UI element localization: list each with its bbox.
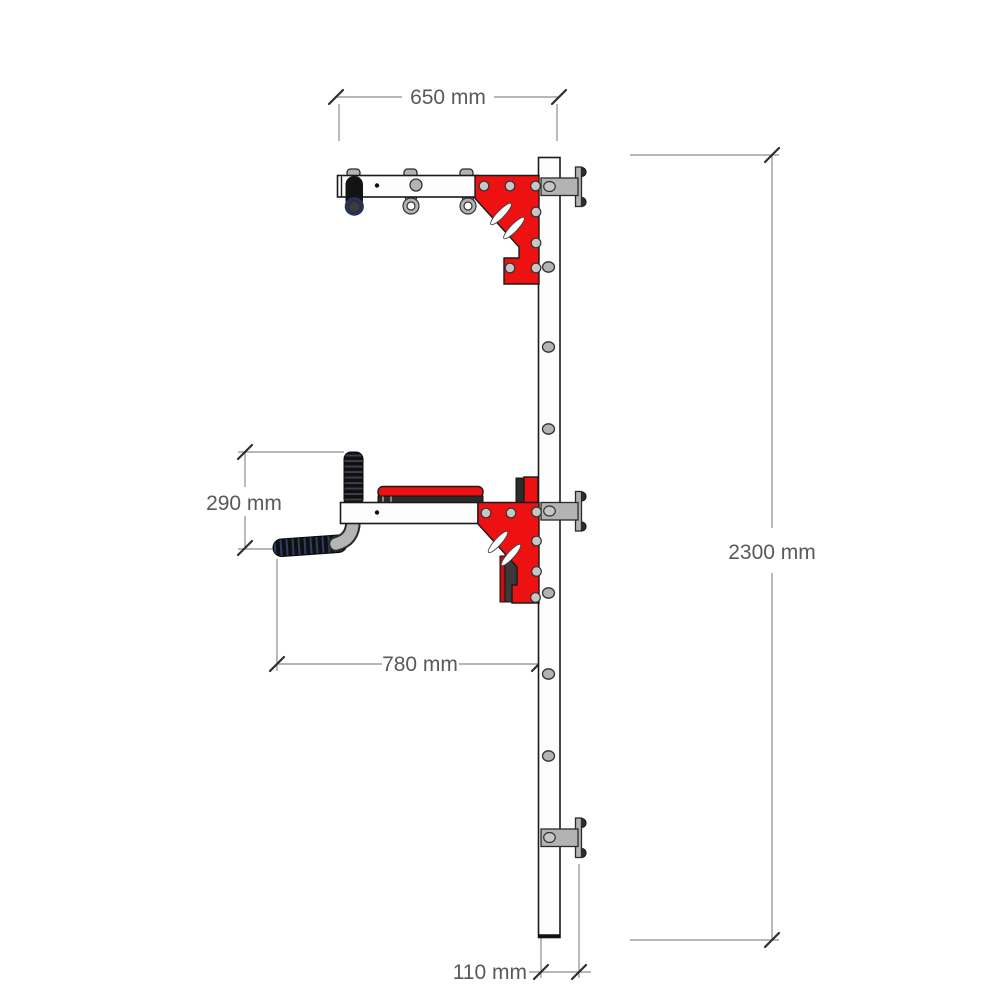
dip-arm-assembly [272,452,541,603]
bracket-hole [544,506,556,516]
technical-drawing-canvas: 650 mm 2300 mm 290 mm 780 mm 110 m [0,0,1000,1000]
post-bolt [543,751,555,761]
pullup-arm-assembly [338,169,541,284]
gusset-hole [531,181,541,191]
dimension-post-depth: 110 mm [453,848,591,984]
bracket-hole [544,182,556,192]
vertical-grip [344,452,363,506]
dip-pad-base [378,496,483,503]
arm-bolt [410,179,422,191]
gusset-hole [532,567,542,577]
dimension-label-290: 290 mm [206,492,282,515]
post-bolt [543,262,555,272]
dimension-label-110: 110 mm [453,961,527,984]
gusset-hole [531,593,541,603]
eyelet-ring-hole [407,202,415,210]
post-bolt [543,424,555,434]
pad-clamp-red [524,477,538,503]
gusset-hole [531,263,541,273]
wall-post [538,158,561,938]
rivet-dot [375,183,379,187]
elbow-tube [336,521,353,544]
post-bolt [543,588,555,598]
gusset-hole [532,536,542,546]
dimension-label-650: 650 mm [410,86,486,109]
gusset-hole [531,238,541,248]
gusset-hole [531,207,541,217]
dimension-label-780: 780 mm [382,653,458,676]
gusset-hole [506,508,516,518]
rivet-dot [375,510,379,514]
post-bolt [543,669,555,679]
dimension-top-width: 650 mm [329,86,566,141]
gusset-hole [505,263,515,273]
dimension-label-2300: 2300 mm [728,541,816,564]
dip-arm-tube [341,503,479,524]
wall-post-body [539,158,561,938]
gusset-hole [481,508,491,518]
dimension-drawing: 650 mm 2300 mm 290 mm 780 mm 110 m [0,0,1000,1000]
gusset-hole [479,181,489,191]
bracket-hole [544,833,556,843]
dimension-overall-height: 2300 mm [630,148,816,947]
gusset-hole [505,181,515,191]
eyelet-ring-hole [464,202,472,210]
post-bolt [543,342,555,352]
pullup-grip-core [349,202,359,212]
gusset-hole [532,507,542,517]
